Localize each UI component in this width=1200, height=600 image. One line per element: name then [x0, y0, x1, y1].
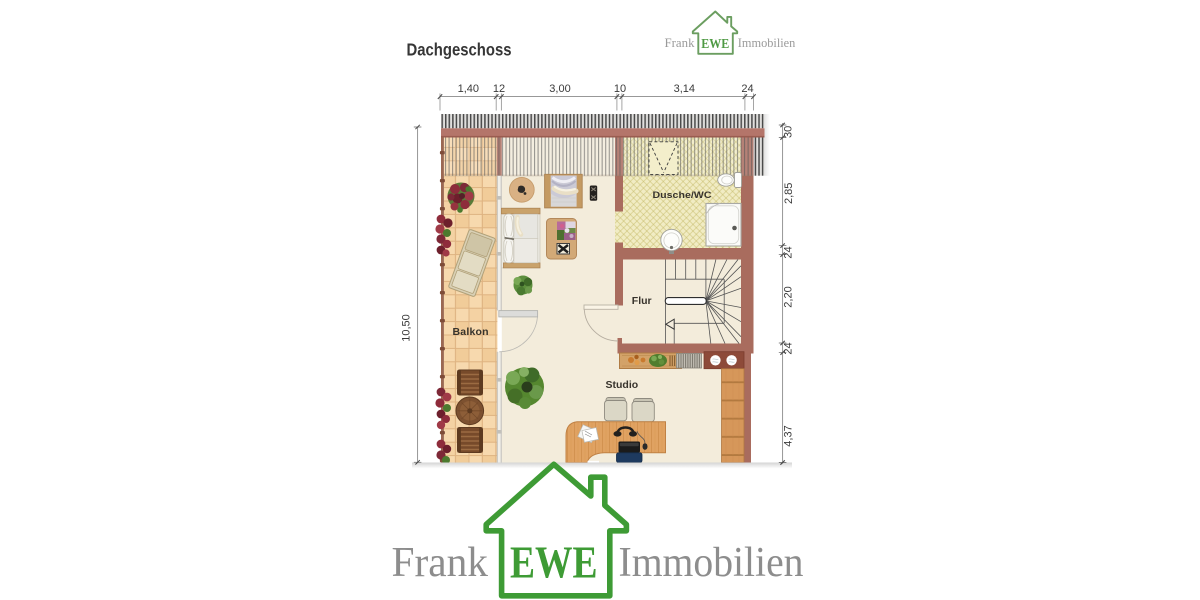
svg-text:Balkon: Balkon — [453, 326, 489, 338]
svg-text:Immobilien: Immobilien — [619, 540, 804, 586]
svg-text:Frank: Frank — [665, 36, 696, 50]
svg-text:24: 24 — [783, 246, 795, 258]
svg-text:Flur: Flur — [632, 295, 652, 307]
svg-text:2,85: 2,85 — [783, 183, 795, 204]
svg-text:Immobilien: Immobilien — [738, 36, 796, 50]
svg-text:10: 10 — [614, 83, 626, 95]
svg-text:Studio: Studio — [606, 379, 639, 391]
svg-text:24: 24 — [783, 342, 795, 354]
svg-text:Dachgeschoss: Dachgeschoss — [407, 40, 512, 60]
svg-text:EWE: EWE — [510, 538, 598, 588]
svg-text:30: 30 — [783, 126, 795, 138]
svg-text:4,37: 4,37 — [783, 425, 795, 446]
svg-text:12: 12 — [493, 83, 505, 95]
svg-text:10,50: 10,50 — [401, 314, 413, 342]
svg-text:EWE: EWE — [701, 36, 729, 51]
svg-text:3,00: 3,00 — [549, 83, 570, 95]
svg-text:Dusche/WC: Dusche/WC — [653, 190, 712, 201]
svg-text:24: 24 — [741, 83, 753, 95]
svg-text:1,40: 1,40 — [458, 83, 479, 95]
svg-text:Frank: Frank — [392, 540, 489, 586]
svg-text:3,14: 3,14 — [674, 83, 695, 95]
svg-text:2,20: 2,20 — [783, 286, 795, 307]
